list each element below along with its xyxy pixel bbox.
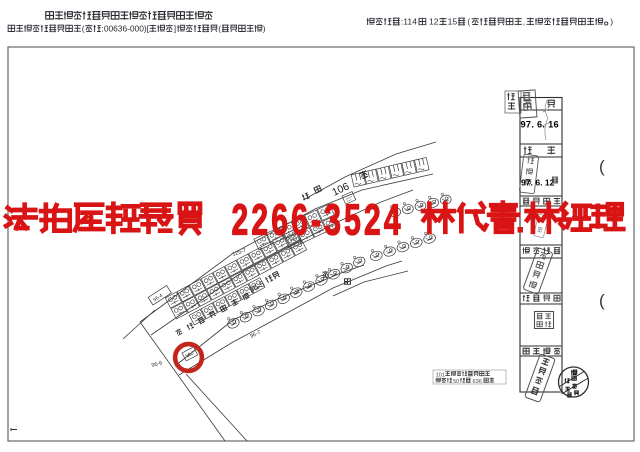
svg-text:15: 15: [448, 17, 458, 27]
svg-text:12: 12: [429, 17, 439, 27]
svg-text:101: 101: [436, 372, 445, 378]
svg-text:(: (: [218, 23, 221, 33]
svg-text:(: (: [599, 157, 605, 176]
svg-text:): ): [263, 23, 266, 33]
svg-text:96-5: 96-5: [248, 279, 267, 295]
svg-text:(: (: [467, 17, 470, 27]
svg-text:): ): [610, 17, 613, 27]
svg-text:(: (: [82, 23, 85, 33]
svg-text:96-6: 96-6: [151, 360, 163, 369]
svg-text::00636-000)[: :00636-000)[: [102, 23, 150, 33]
svg-text::114: :114: [401, 17, 417, 27]
svg-text:50: 50: [453, 379, 459, 385]
svg-text:2266-3524: 2266-3524: [232, 195, 404, 244]
svg-text:,: ,: [523, 17, 525, 27]
svg-text:125-7: 125-7: [232, 248, 247, 258]
svg-text:97. 6. 12: 97. 6. 12: [521, 178, 555, 188]
svg-text:96-7: 96-7: [249, 330, 262, 340]
svg-text:]: ]: [174, 23, 176, 33]
svg-text:636: 636: [473, 379, 482, 385]
svg-text:97. 6. 16: 97. 6. 16: [521, 120, 559, 130]
svg-text:(: (: [599, 291, 605, 310]
